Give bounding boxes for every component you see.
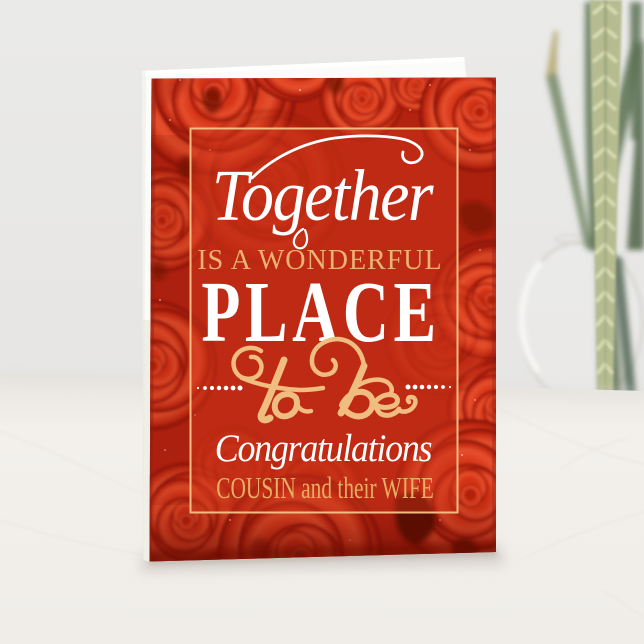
svg-text:COUSIN and their WIFE: COUSIN and their WIFE — [216, 470, 434, 505]
svg-text:Congratulations: Congratulations — [215, 426, 432, 470]
svg-text:Together: Together — [212, 156, 435, 237]
